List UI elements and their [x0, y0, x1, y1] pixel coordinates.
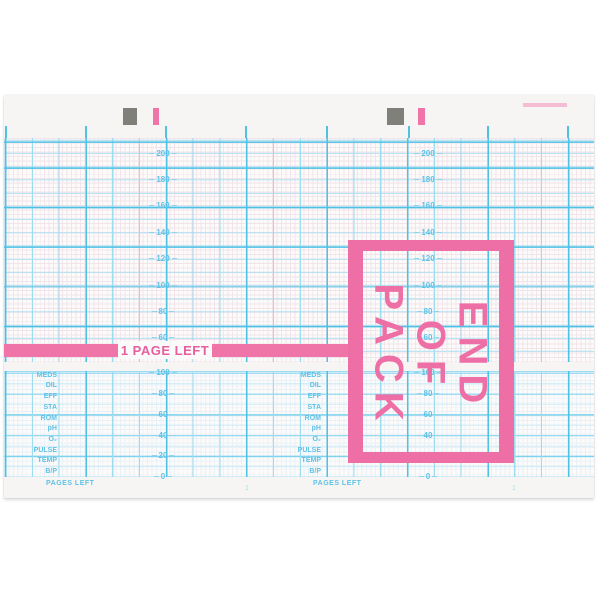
- row-label: ROM: [279, 414, 321, 425]
- row-label: B/P: [15, 467, 57, 478]
- pages-left-label: PAGES LEFT: [313, 480, 361, 487]
- row-label: DIL: [15, 381, 57, 392]
- row-label: MEDS: [279, 371, 321, 382]
- row-label: pH: [15, 424, 57, 435]
- scale-tick-label: 60: [143, 410, 183, 419]
- grid-tick: [326, 126, 328, 138]
- scale-tick-label: 180: [143, 175, 183, 184]
- scale-tick-label: 140: [408, 228, 448, 237]
- row-label: EFF: [15, 392, 57, 403]
- row-label: STA: [15, 403, 57, 414]
- row-label: O₂: [15, 435, 57, 446]
- scale-tick-label: 100: [143, 368, 183, 377]
- scale-tick-label: 80: [143, 389, 183, 398]
- annotation-rows-left: MEDS DIL EFF STA ROM pH O₂ PULSE TEMP B/…: [15, 95, 57, 498]
- scale-tick-label: 100: [143, 281, 183, 290]
- row-label: STA: [279, 403, 321, 414]
- end-of-pack-box: END OF PACK: [348, 240, 514, 463]
- scale-tick-label: 160: [143, 201, 183, 210]
- row-label: DIL: [279, 381, 321, 392]
- end-of-pack-line: OF: [410, 283, 452, 429]
- one-page-left-bar-segment: [212, 344, 348, 357]
- row-label: PULSE: [279, 446, 321, 457]
- one-page-left-text: 1 PAGE LEFT: [118, 341, 212, 359]
- scale-column-left: 200 180 160 140 120 100 80 60 100 80 60 …: [143, 95, 183, 498]
- row-label: EFF: [279, 392, 321, 403]
- registration-mark-gray-left: [123, 108, 137, 125]
- pages-left-label: PAGES LEFT: [46, 480, 94, 487]
- grid-tick: [567, 126, 569, 138]
- scale-tick-label: 160: [408, 201, 448, 210]
- row-label: TEMP: [279, 456, 321, 467]
- row-label: PULSE: [15, 446, 57, 457]
- scale-tick-label: 180: [408, 175, 448, 184]
- page-number: 1: [512, 485, 516, 492]
- end-of-pack-line: END: [452, 283, 494, 429]
- annotation-rows-right: MEDS DIL EFF STA ROM pH O₂ PULSE TEMP B/…: [279, 95, 321, 498]
- scale-tick-label: 0: [408, 472, 448, 481]
- page-number: 1: [245, 485, 249, 492]
- row-label: B/P: [279, 467, 321, 478]
- next-sheet-pink-edge: [523, 103, 567, 107]
- row-label: MEDS: [15, 371, 57, 382]
- scale-tick-label: 200: [143, 149, 183, 158]
- row-label: pH: [279, 424, 321, 435]
- row-label: TEMP: [15, 456, 57, 467]
- grid-tick: [245, 126, 247, 138]
- registration-mark-gray-right: [387, 108, 404, 125]
- scale-tick-label: 120: [143, 254, 183, 263]
- end-of-pack-line: PACK: [368, 283, 410, 429]
- grid-tick: [5, 126, 7, 138]
- scale-tick-label: 40: [143, 431, 183, 440]
- grid-tick: [85, 126, 87, 138]
- scale-tick-label: 140: [143, 228, 183, 237]
- chart-paper: 200 180 160 140 120 100 80 60 100 80 60 …: [4, 95, 594, 498]
- row-label: O₂: [279, 435, 321, 446]
- grid-tick: [487, 126, 489, 138]
- scale-tick-label: 200: [408, 149, 448, 158]
- row-label: ROM: [15, 414, 57, 425]
- scale-tick-label: 0: [143, 472, 183, 481]
- scale-tick-label: 80: [143, 307, 183, 316]
- scale-tick-label: 20: [143, 451, 183, 460]
- end-of-pack-text: END OF PACK: [368, 283, 494, 420]
- one-page-left-bar-segment: [4, 344, 118, 357]
- screenshot-stage: 200 180 160 140 120 100 80 60 100 80 60 …: [0, 0, 600, 600]
